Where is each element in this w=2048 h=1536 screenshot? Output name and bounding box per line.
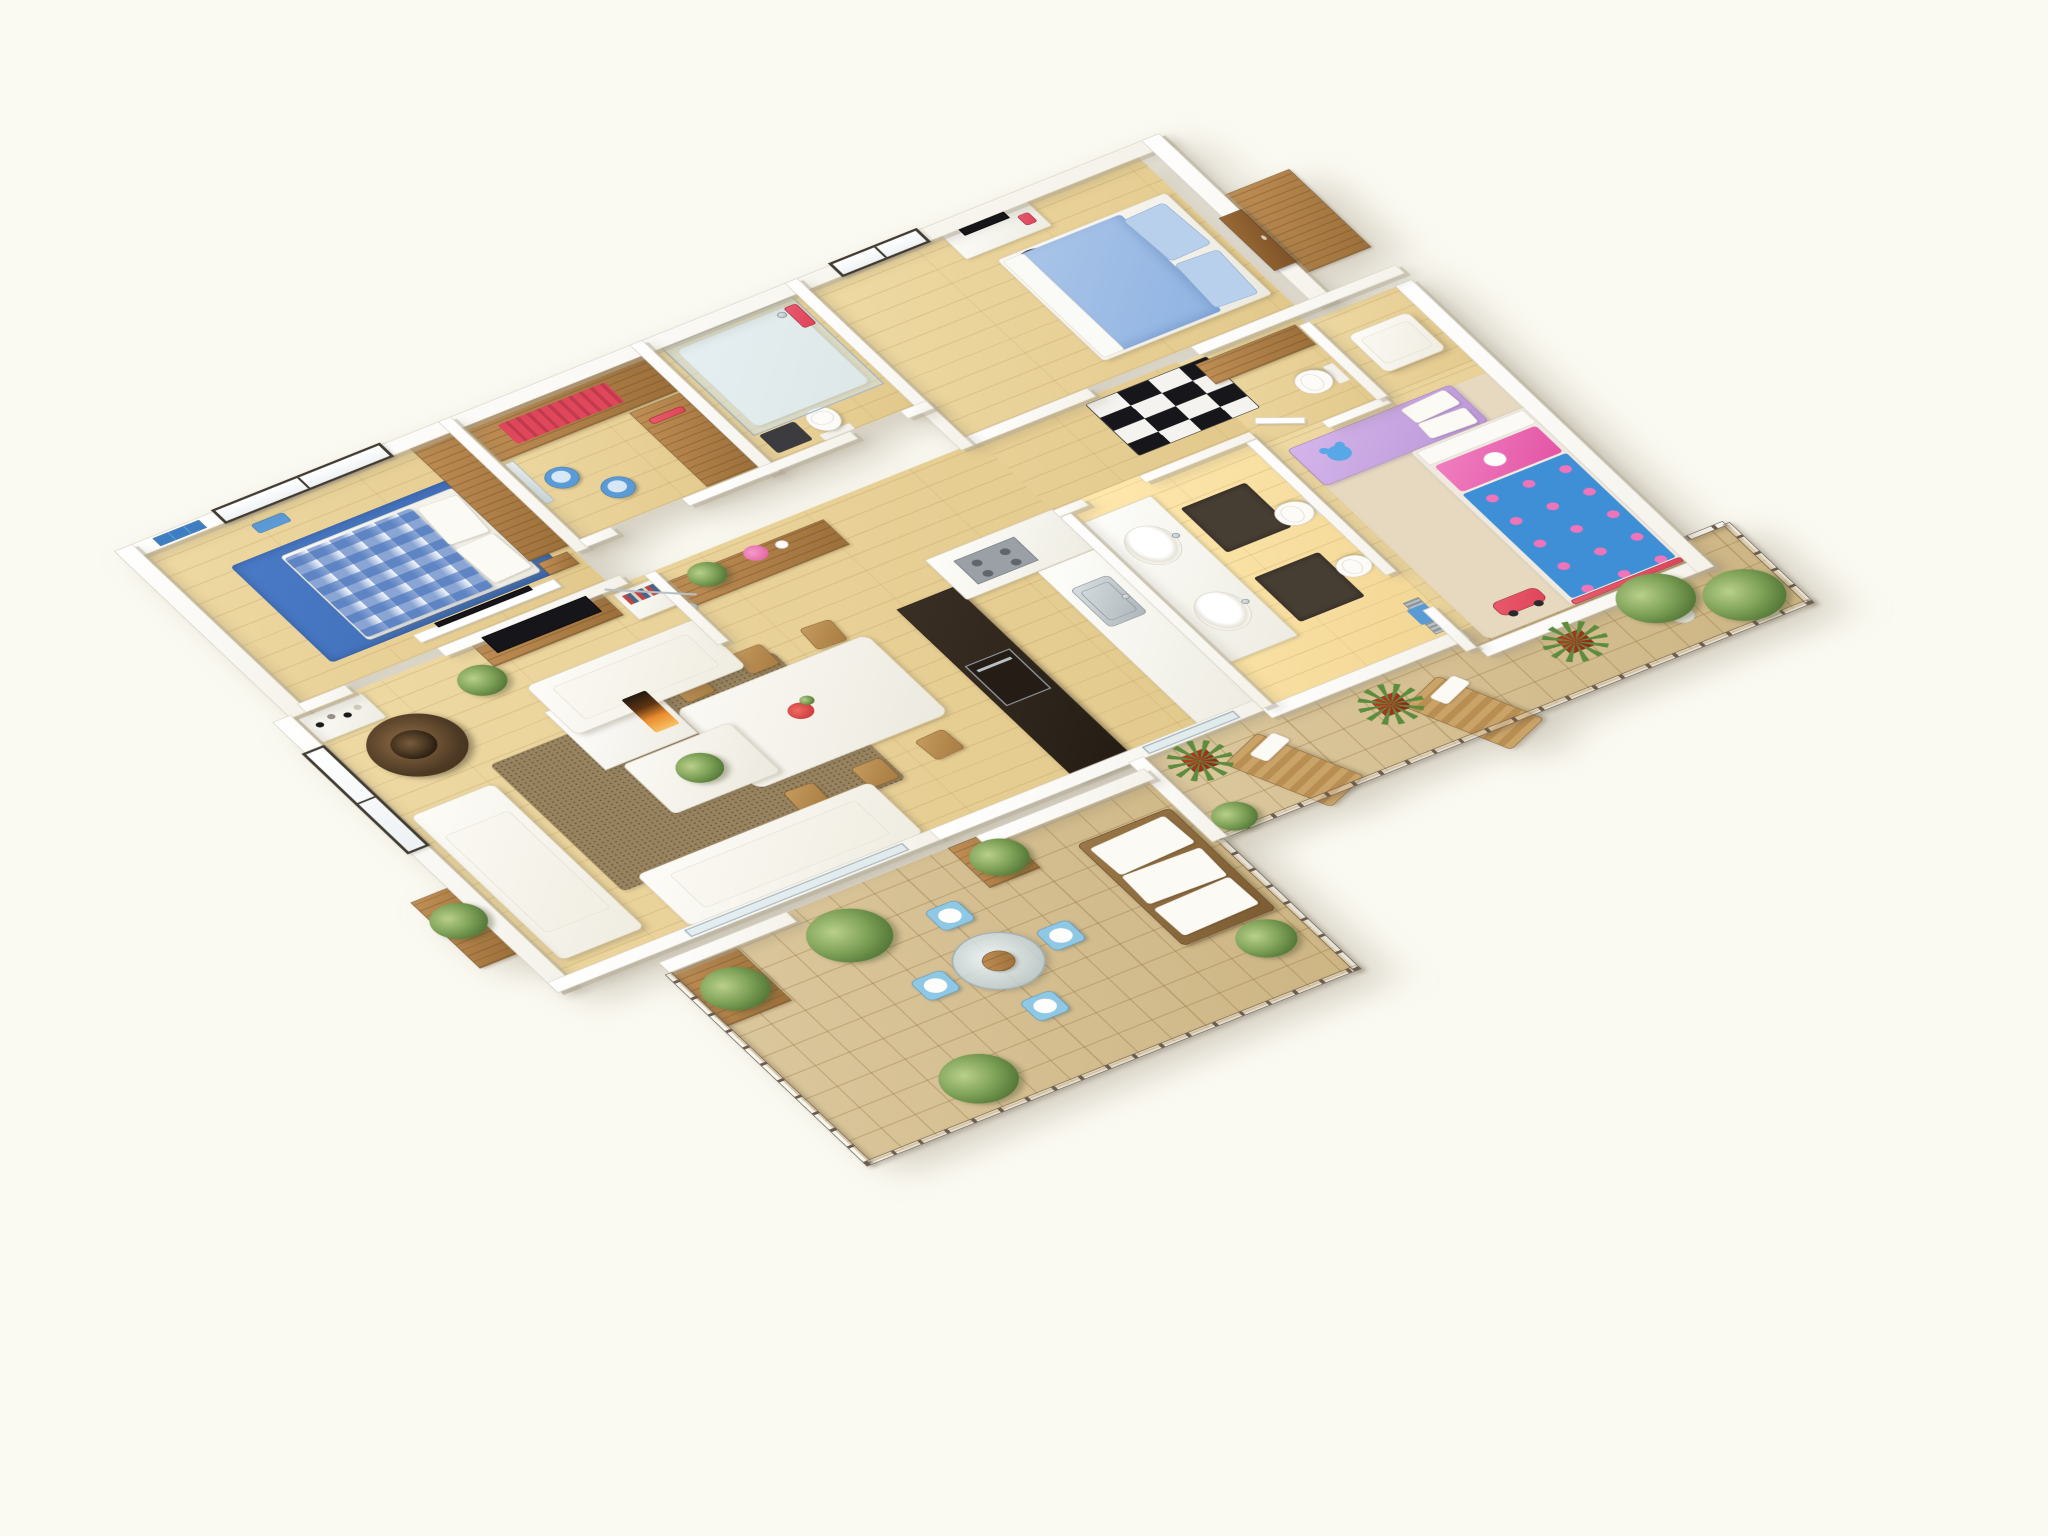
canvas [0,0,2048,1536]
floor-plan [77,76,1970,1214]
small-bath-door [1255,417,1306,424]
